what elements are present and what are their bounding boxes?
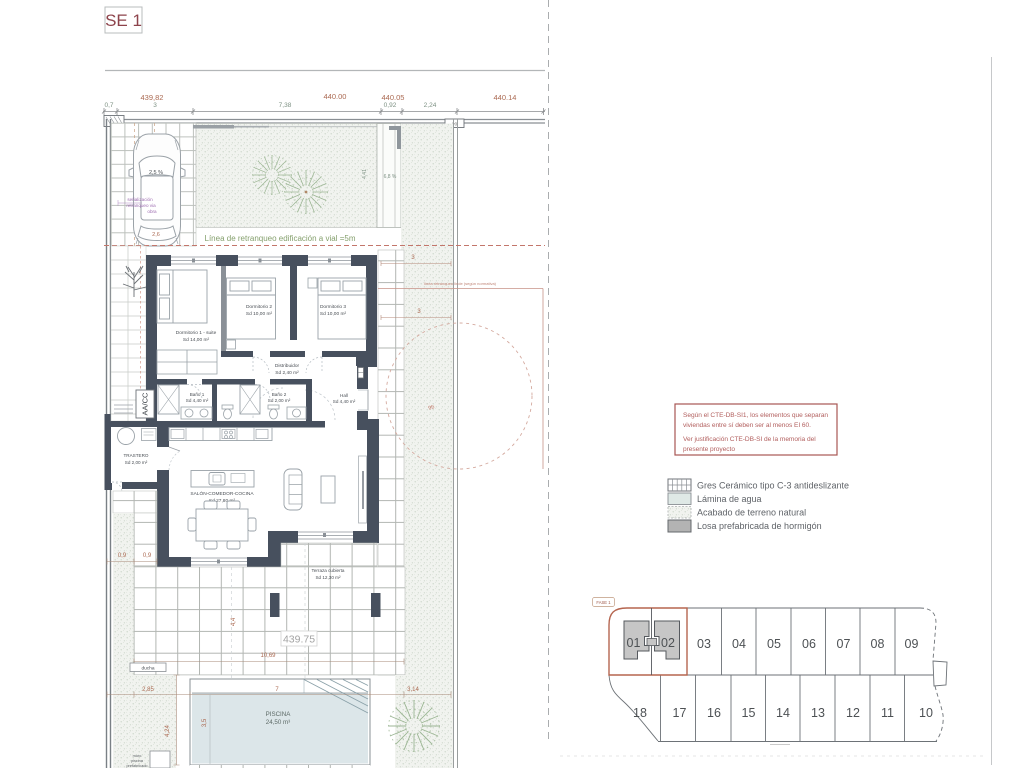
svg-text:Sd 10,00 m²: Sd 10,00 m² <box>246 311 273 317</box>
svg-text:Sd 2,00 m²: Sd 2,00 m² <box>268 398 291 403</box>
svg-text:3,5: 3,5 <box>202 718 208 727</box>
svg-text:PISCINA: PISCINA <box>266 711 292 718</box>
svg-text:muro: muro <box>133 754 142 758</box>
svg-text:Sd 14,00 m²: Sd 14,00 m² <box>183 337 210 343</box>
svg-text:2,85: 2,85 <box>142 687 154 693</box>
svg-text:viviendas entre sí deben ser a: viviendas entre sí deben ser al menos EI… <box>683 422 811 429</box>
svg-text:piscina: piscina <box>131 759 144 763</box>
svg-text:Sd 2,40 m²: Sd 2,40 m² <box>275 370 299 376</box>
svg-text:Línea de retranqueo edificació: Línea de retranqueo edificación a vial =… <box>205 234 356 243</box>
svg-text:Sd 4,40 m²: Sd 4,40 m² <box>186 398 209 403</box>
svg-text:0,9: 0,9 <box>143 553 152 559</box>
svg-text:17: 17 <box>673 706 687 720</box>
svg-text:4,4: 4,4 <box>231 617 237 626</box>
svg-text:TRASTERO: TRASTERO <box>123 453 148 458</box>
svg-text:24,50 m³: 24,50 m³ <box>266 719 290 726</box>
svg-text:Baño 2: Baño 2 <box>272 392 287 397</box>
svg-text:11: 11 <box>881 706 894 720</box>
svg-text:Hall: Hall <box>340 393 348 398</box>
svg-text:Distribuidor: Distribuidor <box>275 363 300 369</box>
svg-text:13: 13 <box>811 706 825 720</box>
svg-text:07: 07 <box>837 637 851 651</box>
svg-text:10,69: 10,69 <box>260 653 276 659</box>
svg-text:Losa prefabricada de hormigón: Losa prefabricada de hormigón <box>697 521 822 531</box>
svg-text:Sd 2,00 m²: Sd 2,00 m² <box>125 460 148 465</box>
svg-text:Acabado de terreno natural: Acabado de terreno natural <box>697 508 806 518</box>
svg-text:06: 06 <box>802 637 816 651</box>
svg-text:ducha: ducha <box>141 666 154 672</box>
svg-text:3,14: 3,14 <box>407 687 419 693</box>
svg-text:Gres Cerámico tipo C-3 antides: Gres Cerámico tipo C-3 antideslizante <box>697 481 849 491</box>
svg-text:Baño 1: Baño 1 <box>190 392 205 397</box>
svg-text:retranqueo via: retranqueo via <box>126 203 156 208</box>
svg-text:7,38: 7,38 <box>279 102 292 109</box>
svg-text:6,8 %: 6,8 % <box>384 174 397 180</box>
svg-text:0,7: 0,7 <box>104 102 113 109</box>
svg-text:4,41: 4,41 <box>362 169 368 179</box>
svg-text:12: 12 <box>846 706 860 720</box>
svg-text:440.14: 440.14 <box>494 93 517 102</box>
svg-text:Ver justificación CTE-DB-SI de: Ver justificación CTE-DB-SI de la memori… <box>683 436 816 443</box>
svg-text:presente proyecto: presente proyecto <box>683 446 735 453</box>
svg-text:08: 08 <box>871 637 885 651</box>
svg-text:2,24: 2,24 <box>424 102 437 109</box>
svg-text:línea retranqueo linde (según: línea retranqueo linde (según normativa) <box>424 281 497 286</box>
svg-text:03: 03 <box>697 637 711 651</box>
svg-text:Sd 10,00 m²: Sd 10,00 m² <box>320 311 347 317</box>
svg-text:obra: obra <box>147 209 157 214</box>
svg-text:4,24: 4,24 <box>165 725 171 737</box>
svg-text:Dormitorio 1 - suite: Dormitorio 1 - suite <box>176 330 217 336</box>
svg-text:439.75: 439.75 <box>283 634 315 646</box>
svg-text:3: 3 <box>153 102 157 109</box>
svg-text:09: 09 <box>905 637 919 651</box>
svg-text:AA/CC: AA/CC <box>141 392 150 416</box>
svg-text:0,9: 0,9 <box>118 553 127 559</box>
svg-text:Dormitorio 3: Dormitorio 3 <box>320 304 346 310</box>
svg-text:440.05: 440.05 <box>382 93 405 102</box>
svg-text:prefabricado: prefabricado <box>126 764 147 768</box>
svg-text:2,5 %: 2,5 % <box>149 170 163 176</box>
svg-text:05: 05 <box>767 637 781 651</box>
svg-text:Lámina de agua: Lámina de agua <box>697 494 762 504</box>
svg-text:01: 01 <box>627 636 641 650</box>
svg-text:Terraza cubierta: Terraza cubierta <box>312 568 345 573</box>
svg-text:440.00: 440.00 <box>324 92 347 101</box>
svg-text:04: 04 <box>732 637 746 651</box>
svg-text:16: 16 <box>707 706 721 720</box>
svg-text:14: 14 <box>776 706 790 720</box>
svg-text:02: 02 <box>661 636 675 650</box>
svg-text:Según el CTE-DB-SI1, los eleme: Según el CTE-DB-SI1, los elementos que s… <box>683 412 828 419</box>
svg-text:Sd 4,40 m²: Sd 4,40 m² <box>333 399 356 404</box>
svg-text:FASE 1: FASE 1 <box>596 600 611 605</box>
svg-text:señalización: señalización <box>127 197 153 202</box>
svg-text:Dormitorio 2: Dormitorio 2 <box>246 304 272 310</box>
svg-text:18: 18 <box>633 706 647 720</box>
svg-text:2,6: 2,6 <box>152 232 160 238</box>
svg-text:0,92: 0,92 <box>384 102 397 109</box>
svg-text:SALÓN-COMEDOR-COCINA: SALÓN-COMEDOR-COCINA <box>190 490 254 497</box>
svg-text:SE 1: SE 1 <box>105 11 142 30</box>
svg-text:10: 10 <box>919 706 933 720</box>
svg-text:15: 15 <box>742 706 756 720</box>
svg-text:439,82: 439,82 <box>141 93 164 102</box>
svg-text:Sd 12,30 m²: Sd 12,30 m² <box>315 575 340 580</box>
